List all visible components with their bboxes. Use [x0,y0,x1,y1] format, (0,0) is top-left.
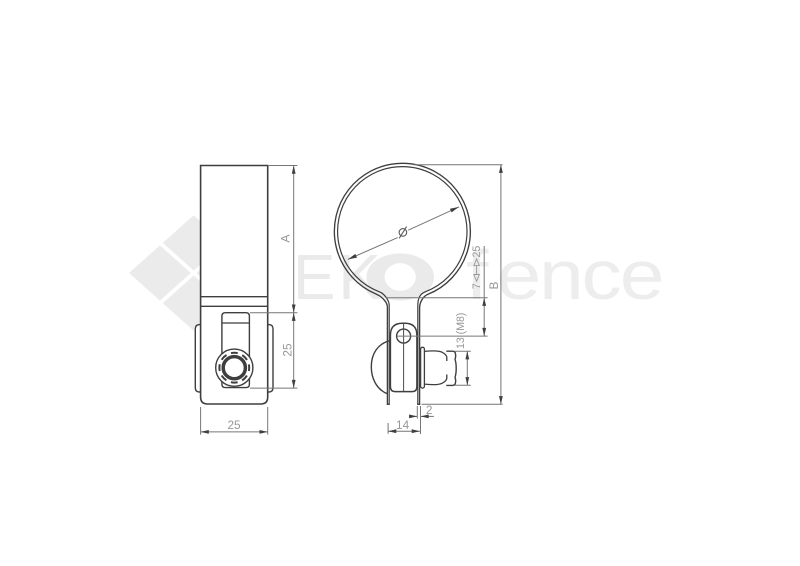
svg-text:2: 2 [426,403,433,417]
svg-text:13 (M8): 13 (M8) [455,313,467,350]
svg-text:B: B [487,281,501,289]
svg-text:A: A [278,234,292,243]
svg-text:7: 7 [471,283,483,289]
svg-text:25: 25 [471,246,483,258]
svg-text:14: 14 [396,418,410,432]
svg-text:25: 25 [281,343,295,357]
svg-text:25: 25 [227,418,241,432]
svg-text:fence: fence [466,236,665,314]
